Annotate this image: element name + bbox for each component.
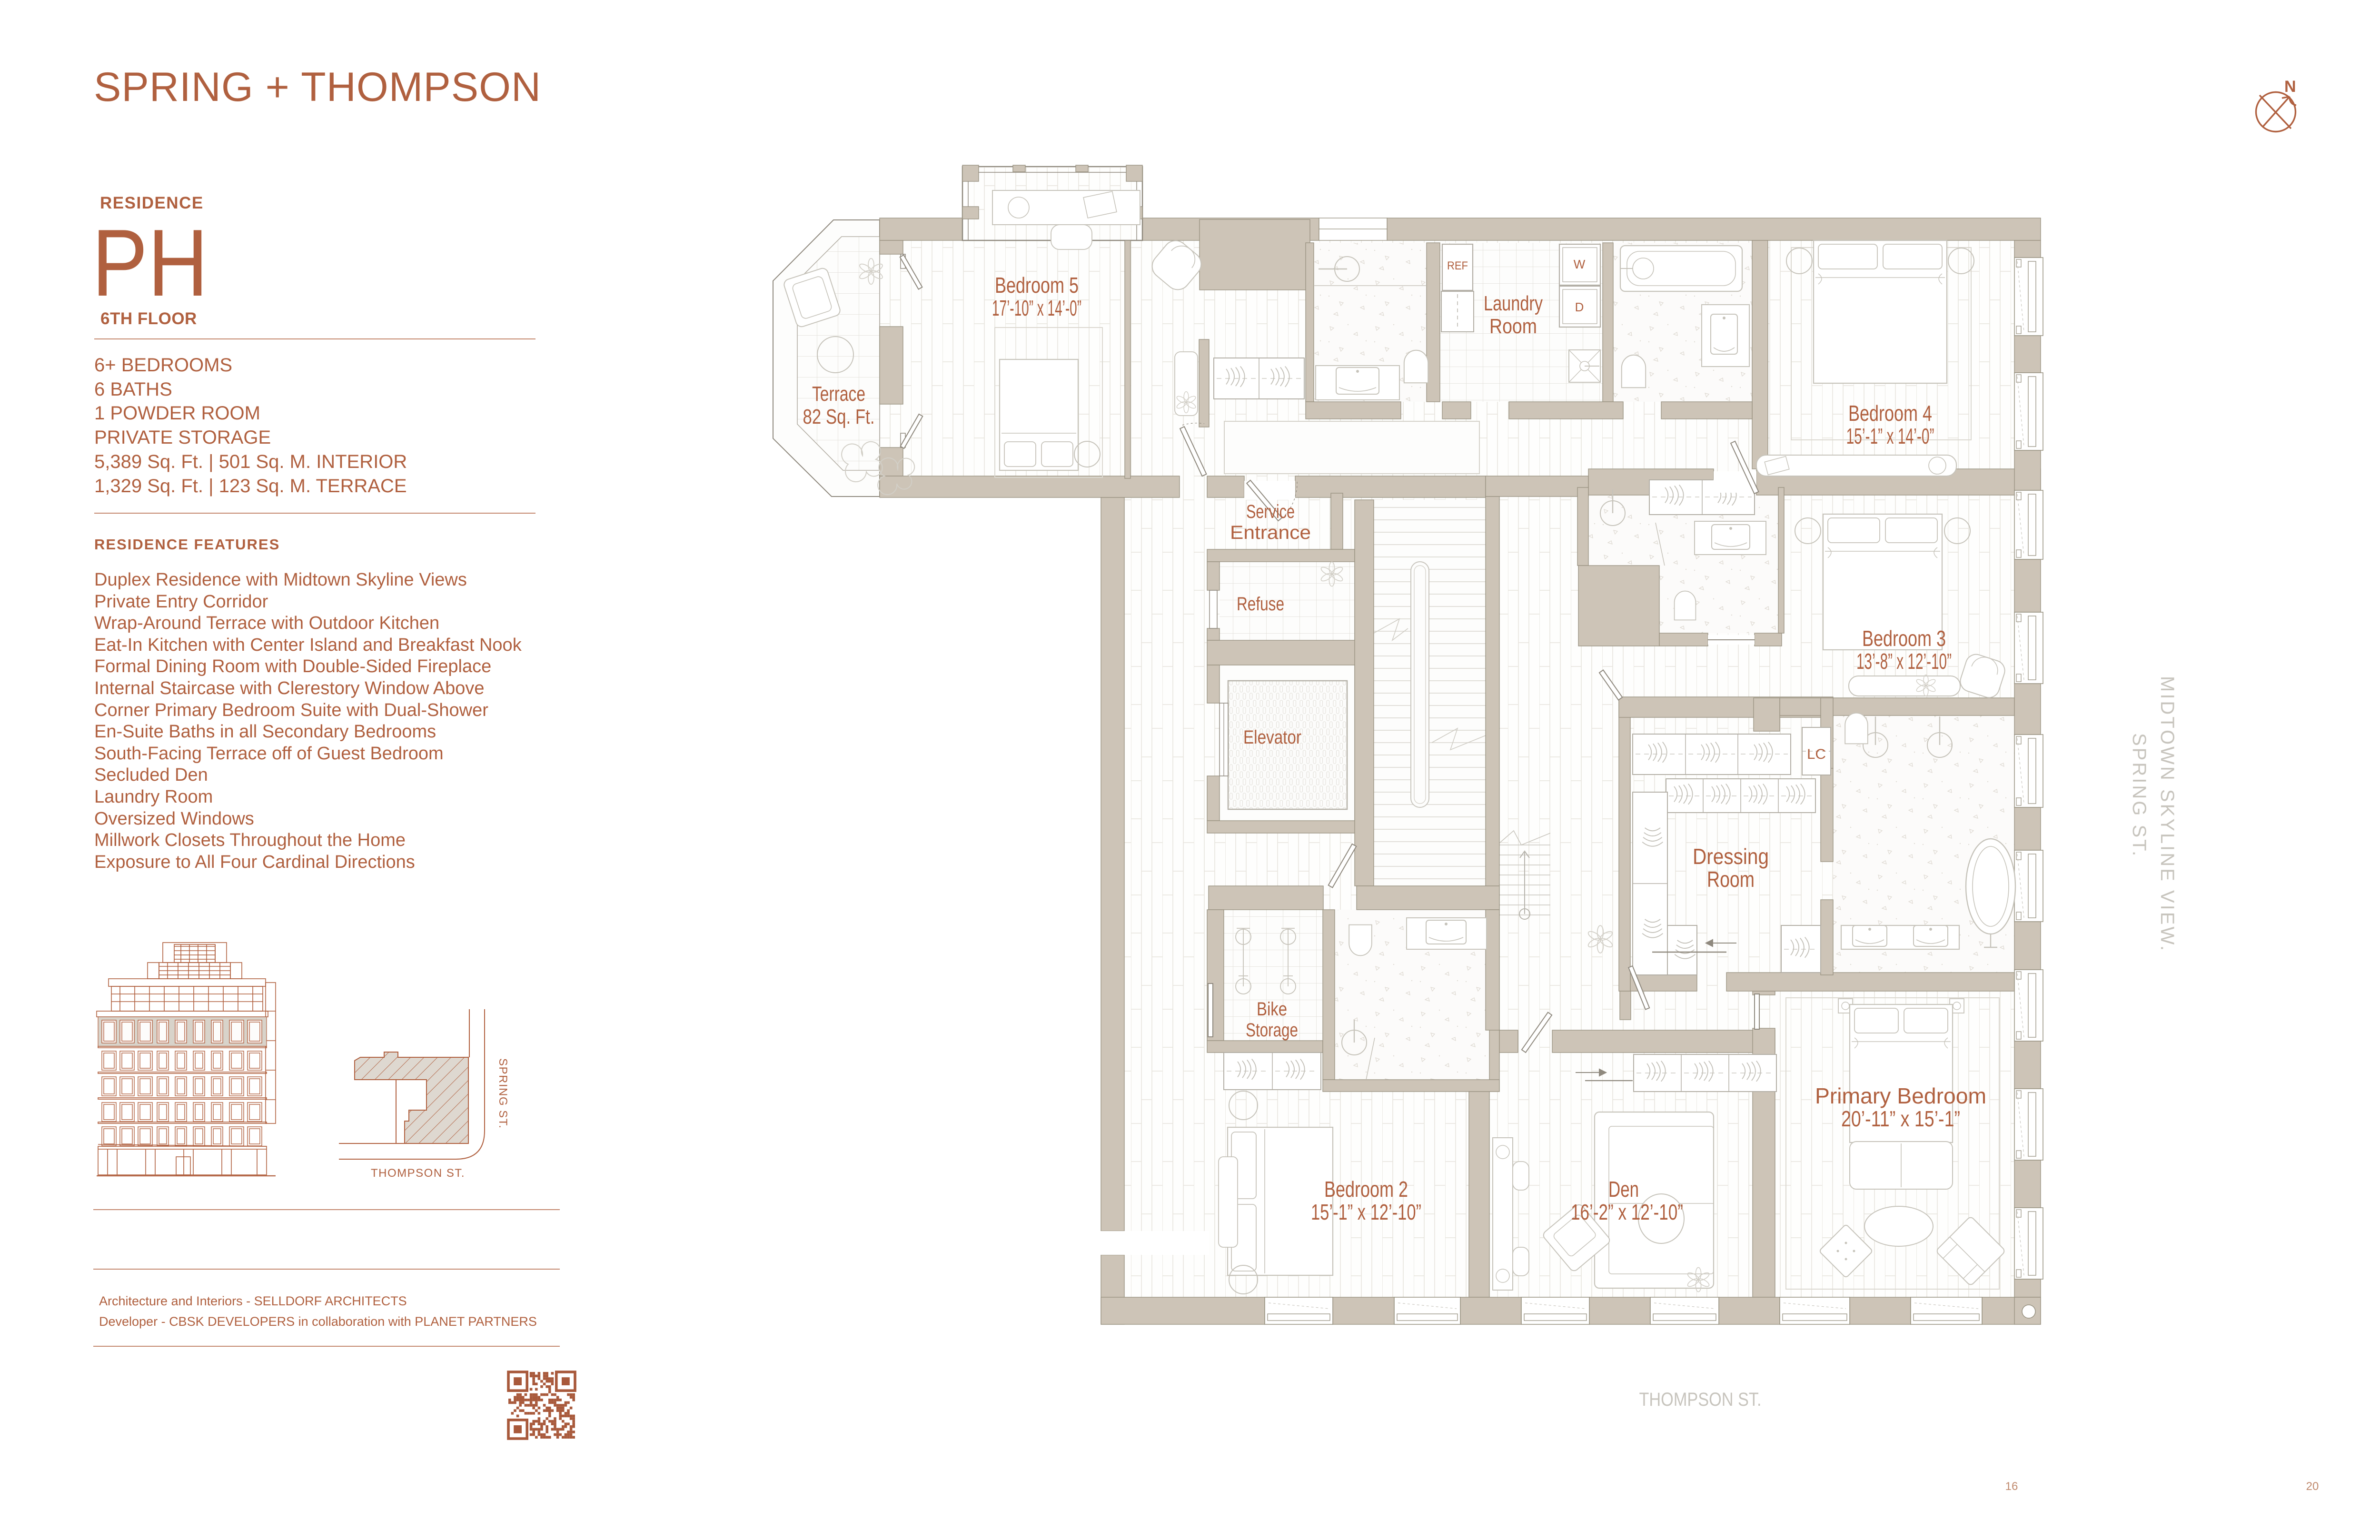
svg-text:THOMPSON ST.: THOMPSON ST. [1639,1389,1762,1410]
svg-text:REF: REF [1447,259,1468,272]
svg-text:20: 20 [2306,1480,2319,1493]
svg-text:Bike: Bike [1257,999,1287,1020]
svg-text:Terrace: Terrace [812,382,865,406]
svg-text:16: 16 [2005,1480,2018,1493]
svg-text:Primary Bedroom: Primary Bedroom [1815,1083,1986,1108]
svg-text:Room: Room [1489,315,1537,338]
svg-text:Bedroom 2: Bedroom 2 [1324,1177,1408,1202]
svg-text:THOMPSON ST.: THOMPSON ST. [371,1167,465,1180]
svg-text:Entrance: Entrance [1230,522,1311,543]
svg-text:13’-8” x 12’-10”: 13’-8” x 12’-10” [1856,649,1952,674]
svg-text:W: W [1574,257,1586,271]
svg-text:Room: Room [1707,867,1755,892]
svg-text:Bedroom 4: Bedroom 4 [1848,401,1932,426]
svg-text:17’-10” x 14’-0”: 17’-10” x 14’-0” [992,296,1081,320]
svg-text:15’-1” x 12’-10”: 15’-1” x 12’-10” [1311,1200,1421,1224]
svg-text:82 Sq. Ft.: 82 Sq. Ft. [803,405,875,428]
svg-text:Bedroom 3: Bedroom 3 [1862,626,1946,651]
svg-text:Dressing: Dressing [1693,844,1769,869]
svg-text:Den: Den [1608,1177,1639,1202]
svg-text:SPRING ST.: SPRING ST. [2129,733,2150,858]
svg-text:D: D [1575,300,1584,314]
svg-text:Refuse: Refuse [1237,594,1284,615]
svg-text:Elevator: Elevator [1243,727,1301,748]
svg-text:Storage: Storage [1246,1020,1298,1041]
svg-text:N: N [2284,78,2296,96]
svg-text:SPRING ST.: SPRING ST. [496,1058,509,1129]
svg-text:Bedroom 5: Bedroom 5 [995,273,1079,298]
svg-text:15’-1” x 14’-0”: 15’-1” x 14’-0” [1846,424,1934,448]
svg-text:20’-11” x 15’-1”: 20’-11” x 15’-1” [1841,1106,1960,1131]
svg-text:LC: LC [1807,746,1826,762]
svg-text:MIDTOWN SKYLINE VIEW.: MIDTOWN SKYLINE VIEW. [2157,676,2178,953]
svg-text:Service: Service [1246,501,1295,522]
svg-text:Laundry: Laundry [1484,292,1543,315]
svg-text:16’-2” x 12’-10”: 16’-2” x 12’-10” [1571,1200,1683,1224]
